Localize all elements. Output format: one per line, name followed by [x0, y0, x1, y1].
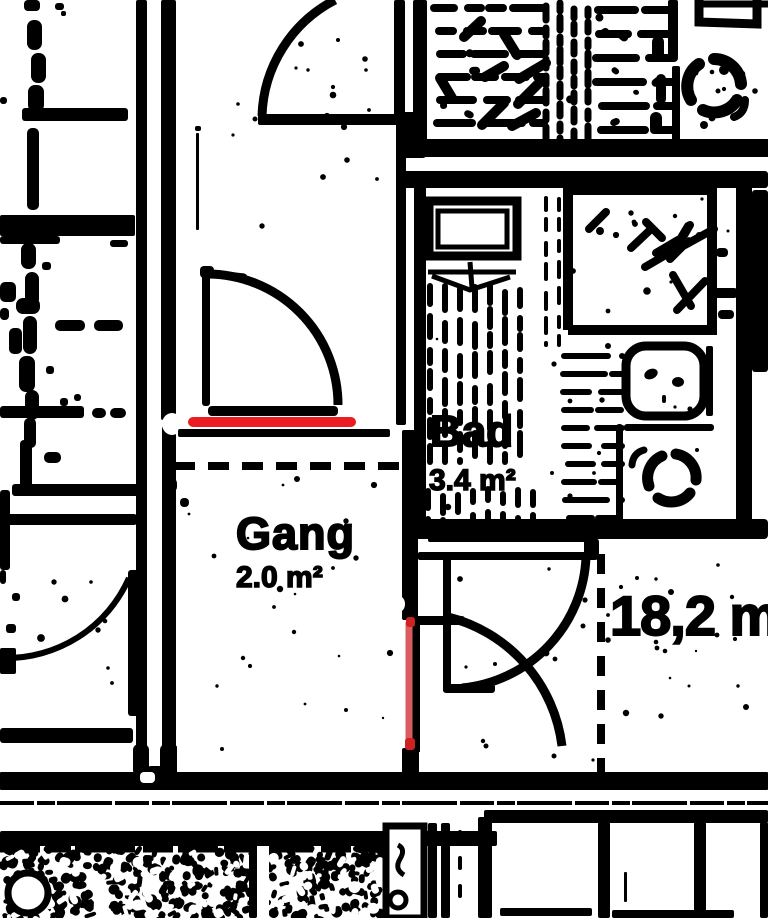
svg-text:Bad: Bad	[430, 407, 513, 456]
svg-text:3.4 m²: 3.4 m²	[429, 464, 516, 497]
svg-text:18,2 m²: 18,2 m²	[610, 584, 768, 647]
svg-text:Gang: Gang	[236, 508, 355, 559]
